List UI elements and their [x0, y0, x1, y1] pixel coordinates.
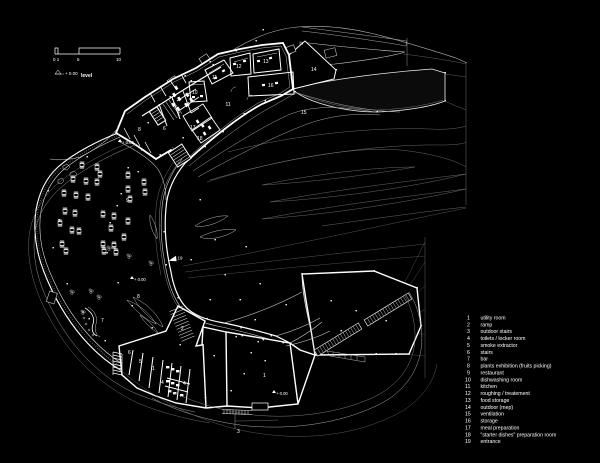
svg-text:plants exhibition (fruits pick: plants exhibition (fruits picking) — [481, 364, 552, 370]
svg-text:kitchen: kitchen — [481, 384, 498, 390]
svg-text:16: 16 — [268, 83, 274, 89]
svg-text:+ 0.00: + 0.00 — [134, 277, 146, 282]
svg-text:2: 2 — [181, 326, 184, 332]
svg-text:storage: storage — [481, 419, 498, 425]
svg-text:restaurant: restaurant — [481, 371, 505, 377]
svg-text:14: 14 — [311, 67, 317, 73]
svg-text:entrance: entrance — [481, 439, 501, 445]
svg-text:2: 2 — [467, 322, 470, 328]
svg-text:18: 18 — [197, 136, 203, 142]
svg-text:+ 0.00: + 0.00 — [276, 391, 288, 396]
svg-text:15: 15 — [465, 412, 471, 418]
svg-text:ramp: ramp — [481, 322, 493, 328]
svg-text:9: 9 — [467, 371, 470, 377]
svg-text:1: 1 — [204, 394, 207, 400]
svg-text:roughing / treatement: roughing / treatement — [481, 391, 531, 397]
svg-text:"starter dishes" preparation r: "starter dishes" preparation room — [481, 432, 557, 438]
svg-text:4: 4 — [177, 110, 180, 116]
svg-text:stairs: stairs — [481, 350, 494, 356]
svg-text:4: 4 — [183, 381, 186, 387]
svg-text:5: 5 — [139, 359, 142, 365]
svg-text:10: 10 — [465, 377, 471, 383]
svg-text:8: 8 — [138, 127, 141, 133]
svg-text:12: 12 — [465, 391, 471, 397]
svg-text:18: 18 — [465, 432, 471, 438]
svg-text:12: 12 — [236, 64, 242, 70]
svg-text:13: 13 — [465, 398, 471, 404]
svg-text:8: 8 — [467, 364, 470, 370]
svg-text:4: 4 — [187, 102, 190, 108]
svg-text:14: 14 — [465, 405, 471, 411]
svg-text:7: 7 — [101, 318, 104, 324]
svg-text:meal preparation: meal preparation — [481, 425, 520, 431]
svg-text:smoke extractor: smoke extractor — [481, 343, 518, 349]
svg-text:outdoor (mep): outdoor (mep) — [481, 405, 514, 411]
svg-text:8: 8 — [137, 294, 140, 300]
svg-text:9: 9 — [126, 198, 129, 204]
svg-text:6: 6 — [163, 126, 166, 132]
svg-text:17: 17 — [190, 125, 196, 131]
svg-text:17: 17 — [465, 425, 471, 431]
svg-text:dishwashing room: dishwashing room — [481, 377, 523, 383]
svg-text:10: 10 — [116, 57, 122, 62]
svg-text:11: 11 — [212, 75, 217, 81]
svg-text:food storage: food storage — [481, 398, 510, 404]
svg-text:+ 0.00: + 0.00 — [65, 71, 78, 76]
svg-text:5: 5 — [467, 343, 470, 349]
svg-text:6: 6 — [467, 350, 470, 356]
svg-text:7: 7 — [467, 357, 470, 363]
svg-text:19: 19 — [178, 256, 184, 261]
svg-text:outdoor stairs: outdoor stairs — [481, 329, 513, 335]
svg-text:3: 3 — [467, 329, 470, 335]
svg-text:level: level — [81, 73, 93, 79]
svg-text:+ 0.00: + 0.00 — [122, 140, 134, 145]
svg-text:16: 16 — [465, 419, 471, 425]
svg-text:3: 3 — [237, 429, 240, 435]
svg-text:toilets / locker room: toilets / locker room — [481, 336, 526, 342]
svg-text:4: 4 — [161, 380, 164, 386]
svg-text:15: 15 — [301, 110, 307, 116]
svg-text:utility room: utility room — [481, 316, 506, 322]
svg-text:4: 4 — [467, 336, 470, 342]
svg-text:10: 10 — [192, 90, 198, 96]
svg-text:0 1: 0 1 — [53, 57, 60, 62]
svg-text:11: 11 — [465, 384, 470, 390]
svg-text:bar: bar — [481, 357, 489, 363]
svg-text:6: 6 — [128, 350, 131, 356]
svg-text:1: 1 — [263, 373, 266, 379]
svg-text:1: 1 — [467, 316, 470, 322]
svg-text:1: 1 — [152, 366, 155, 372]
svg-text:19: 19 — [465, 439, 471, 445]
svg-text:ventilation: ventilation — [481, 412, 504, 418]
svg-text:13: 13 — [263, 59, 269, 65]
svg-text:11: 11 — [226, 102, 231, 108]
